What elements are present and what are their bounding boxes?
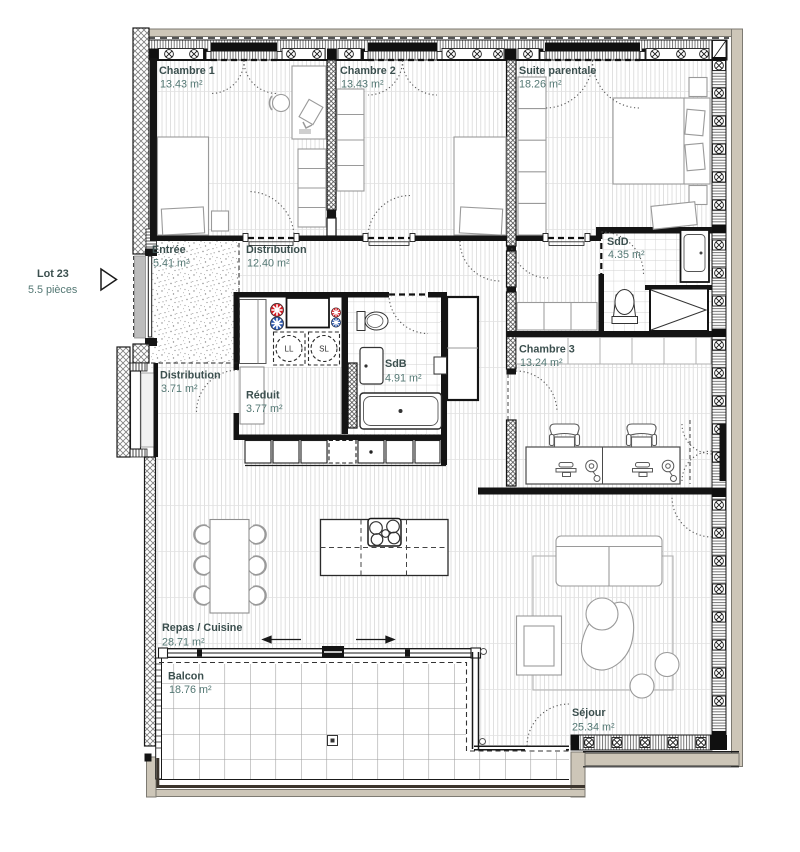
svg-text:Réduit 3.77 m²: Réduit 3.77 m² [246, 386, 284, 416]
svg-text:Lot 23: Lot 23 [37, 268, 69, 280]
svg-text:Séjour 25.34 m²: Séjour 25.34 m² [572, 703, 615, 734]
svg-text:SL: SL [319, 345, 329, 354]
svg-text:Balcon 18.76 m²: Balcon 18.76 m² [168, 667, 212, 697]
svg-text:Entrée 5.41 m²: Entrée 5.41 m² [152, 240, 190, 270]
svg-text:5.5 pièces: 5.5 pièces [28, 284, 78, 296]
svg-text:LL: LL [285, 345, 294, 354]
